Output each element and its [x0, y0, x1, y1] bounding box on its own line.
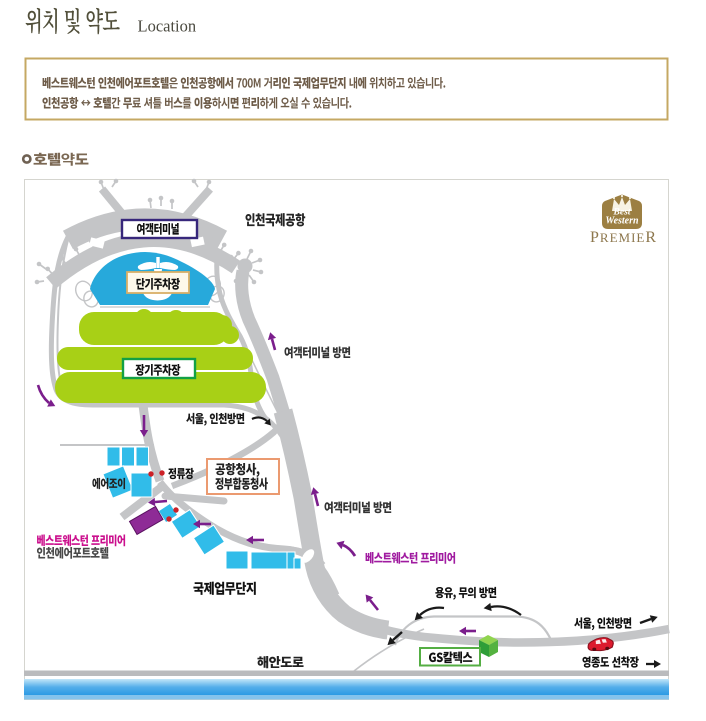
svg-text:PREMIER: PREMIER [590, 229, 657, 246]
svg-text:Western: Western [605, 216, 639, 227]
svg-text:Location: Location [138, 17, 197, 36]
